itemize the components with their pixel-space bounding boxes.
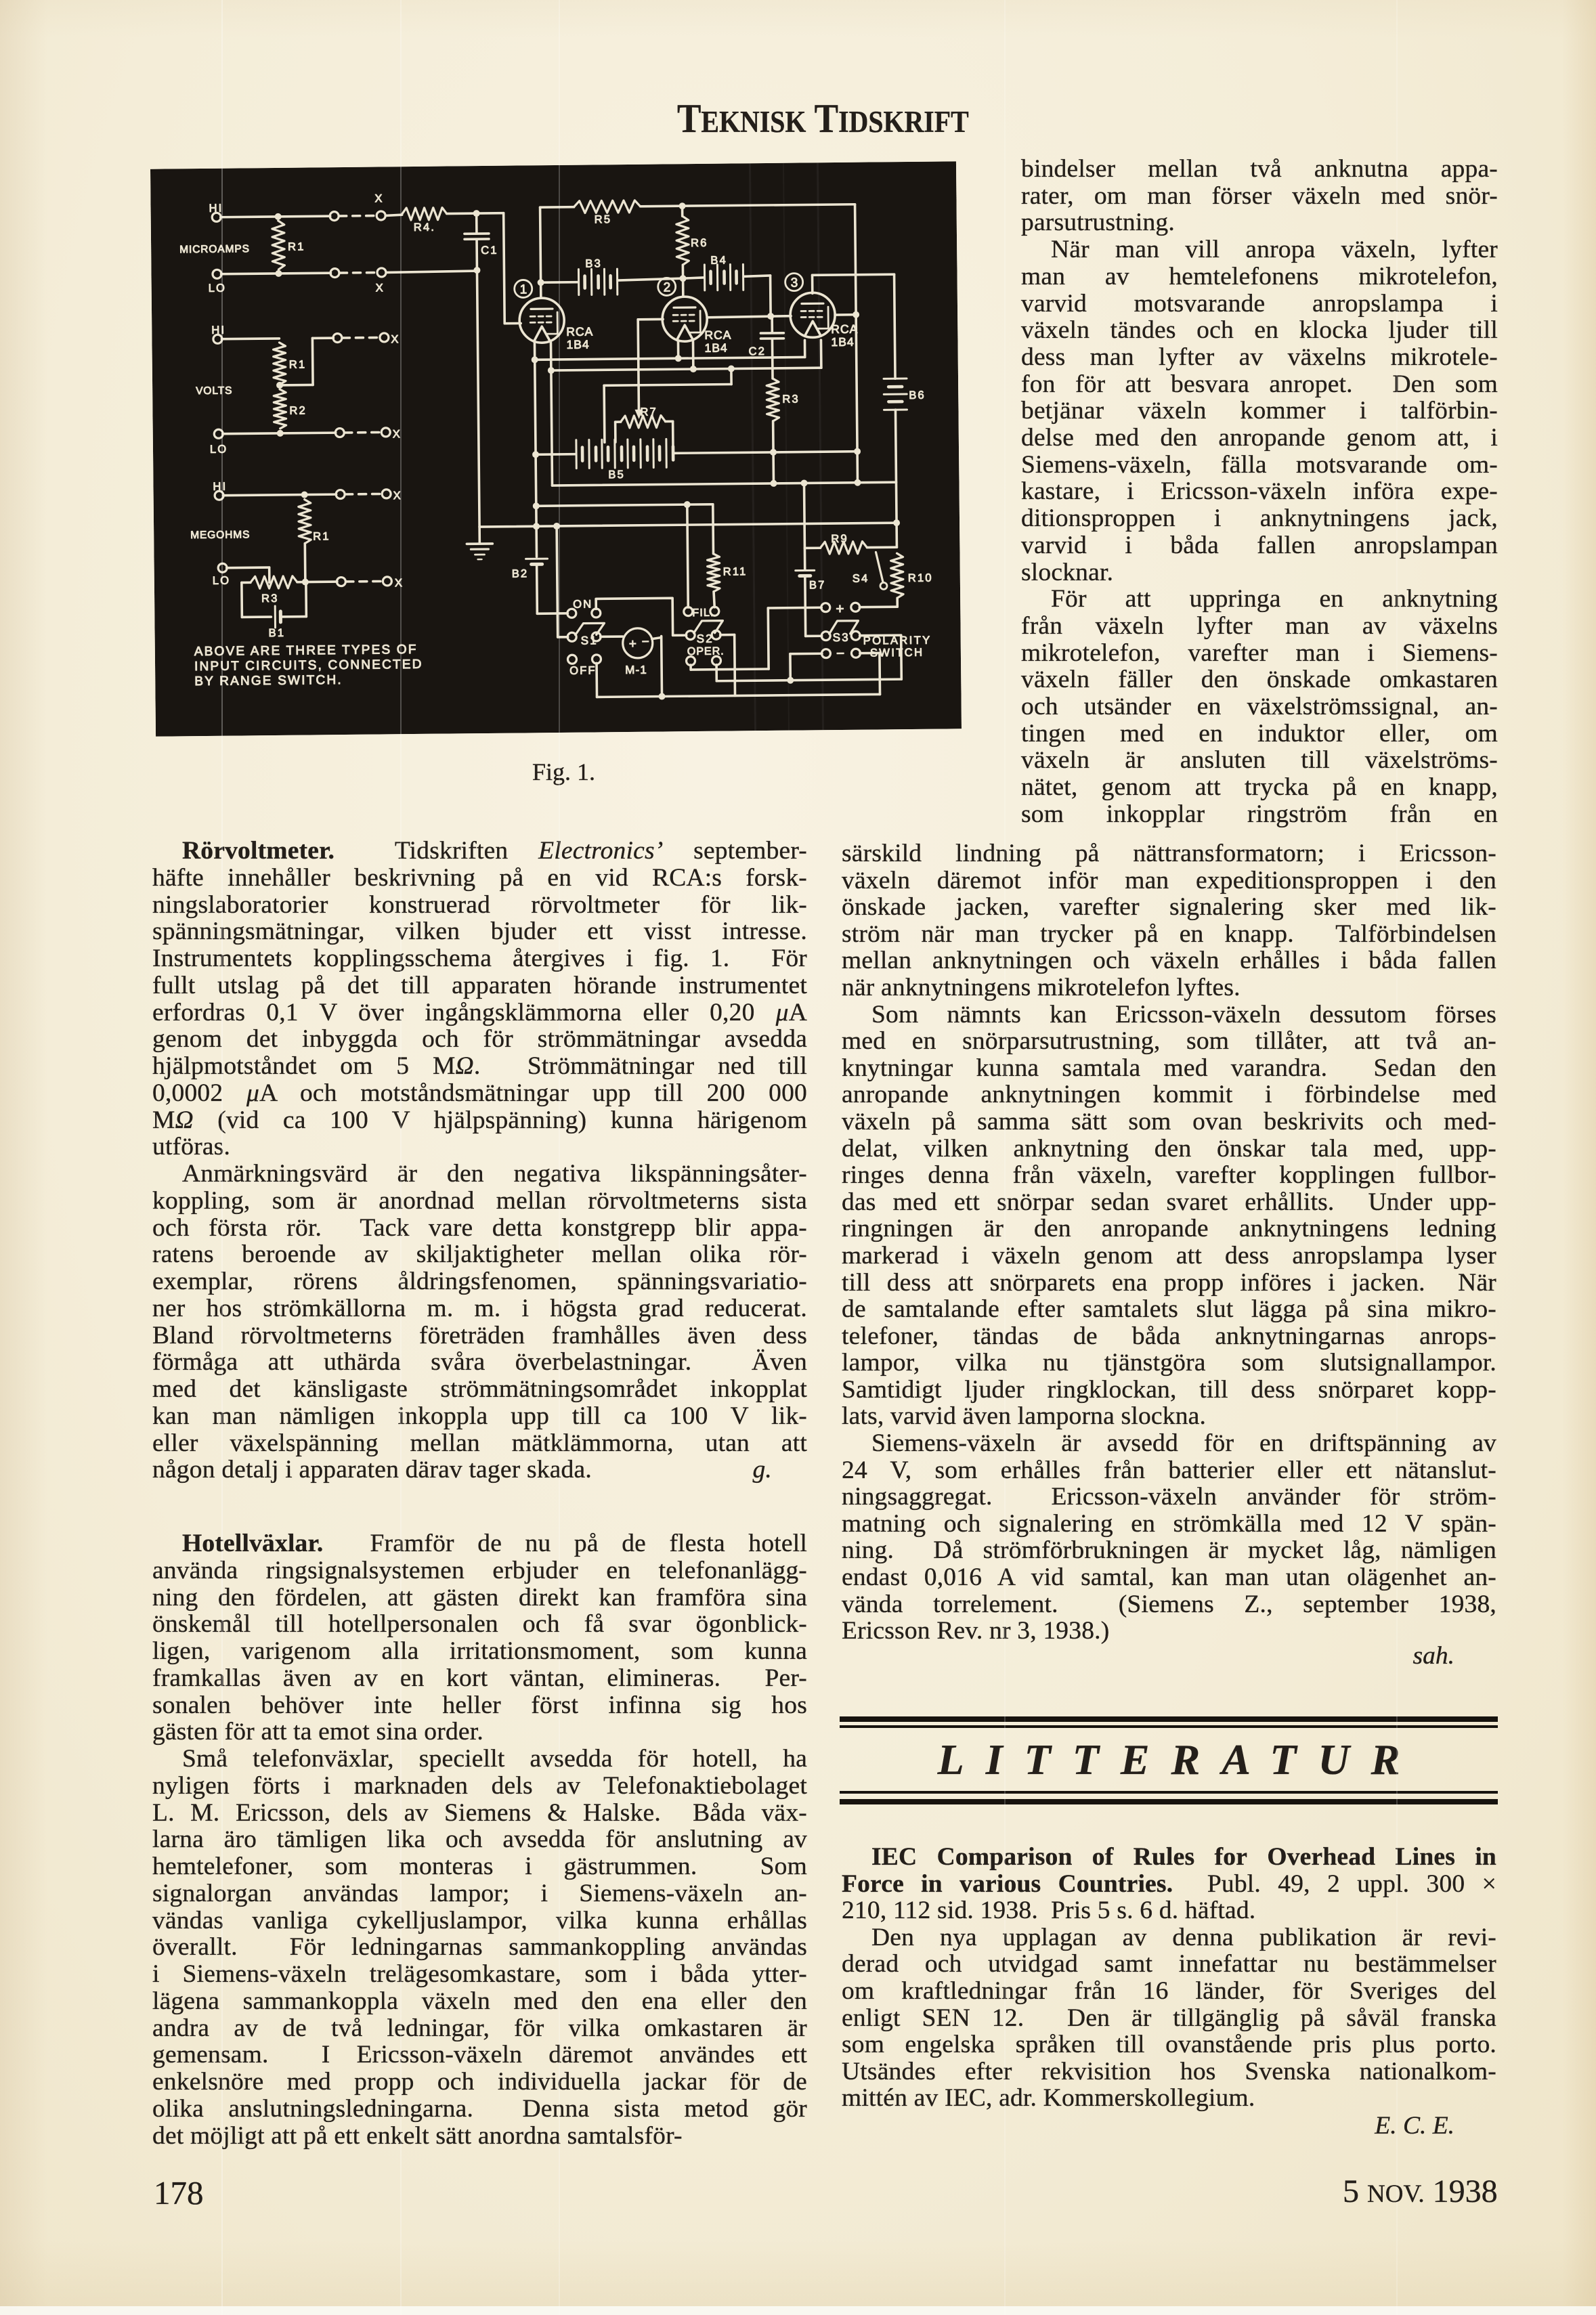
- svg-text:VOLTS: VOLTS: [196, 385, 232, 397]
- svg-text:R4.: R4.: [414, 221, 435, 234]
- svg-text:M-1: M-1: [625, 664, 647, 676]
- svg-text:LO: LO: [210, 443, 228, 456]
- svg-text:1B4: 1B4: [566, 338, 589, 351]
- svg-text:R3: R3: [782, 393, 800, 406]
- svg-text:LO: LO: [209, 282, 227, 295]
- svg-text:MEGOHMS: MEGOHMS: [190, 529, 250, 541]
- svg-text:R7: R7: [640, 406, 657, 418]
- svg-text:R1: R1: [313, 530, 330, 542]
- svg-text:1B4: 1B4: [704, 341, 727, 355]
- svg-text:2: 2: [664, 280, 671, 295]
- svg-text:−: −: [642, 635, 649, 649]
- svg-text:B6: B6: [909, 389, 926, 402]
- svg-text:R9: R9: [831, 533, 848, 545]
- svg-text:−: −: [836, 646, 844, 662]
- svg-text:1: 1: [520, 282, 527, 297]
- svg-text:ON: ON: [573, 598, 592, 610]
- svg-text:R5: R5: [595, 213, 612, 225]
- svg-text:1B4: 1B4: [831, 335, 854, 349]
- svg-text:OFF: OFF: [569, 664, 597, 676]
- svg-text:ABOVE ARE THREE TYPES OF: ABOVE ARE THREE TYPES OF: [194, 643, 418, 659]
- svg-text:S1: S1: [581, 634, 598, 647]
- svg-text:R1: R1: [289, 359, 307, 371]
- svg-text:S2: S2: [697, 632, 714, 645]
- svg-text:R2: R2: [289, 405, 307, 417]
- svg-text:S3: S3: [833, 631, 850, 644]
- svg-text:X: X: [374, 192, 383, 204]
- svg-text:+: +: [836, 601, 844, 617]
- svg-text:X: X: [376, 282, 385, 294]
- svg-text:MICROAMPS: MICROAMPS: [179, 243, 250, 255]
- svg-text:R1: R1: [288, 241, 305, 253]
- svg-text:B1: B1: [269, 627, 286, 639]
- svg-text:B3: B3: [585, 257, 602, 269]
- svg-text:3: 3: [791, 276, 798, 290]
- svg-text:INPUT CIRCUITS, CONNECTED: INPUT CIRCUITS, CONNECTED: [194, 657, 423, 674]
- svg-text:X: X: [391, 333, 400, 345]
- svg-text:B5: B5: [608, 469, 625, 481]
- svg-text:S4: S4: [853, 573, 869, 585]
- svg-text:C1: C1: [481, 244, 498, 257]
- svg-text:X: X: [395, 577, 404, 589]
- svg-text:R10: R10: [908, 572, 933, 584]
- svg-text:R3: R3: [261, 592, 279, 605]
- svg-text:POLARITY: POLARITY: [863, 634, 932, 647]
- svg-text:R11: R11: [723, 565, 748, 578]
- svg-text:B7: B7: [809, 579, 826, 591]
- svg-text:B2: B2: [512, 567, 529, 580]
- svg-text:B4: B4: [710, 255, 727, 267]
- svg-text:R6: R6: [691, 237, 708, 249]
- svg-text:BY RANGE SWITCH.: BY RANGE SWITCH.: [194, 673, 343, 689]
- svg-text:RCA: RCA: [566, 324, 593, 338]
- svg-text:+: +: [629, 637, 637, 651]
- svg-text:RCA: RCA: [704, 328, 731, 342]
- svg-text:SWITCH: SWITCH: [870, 647, 924, 659]
- svg-text:RCA: RCA: [831, 322, 858, 336]
